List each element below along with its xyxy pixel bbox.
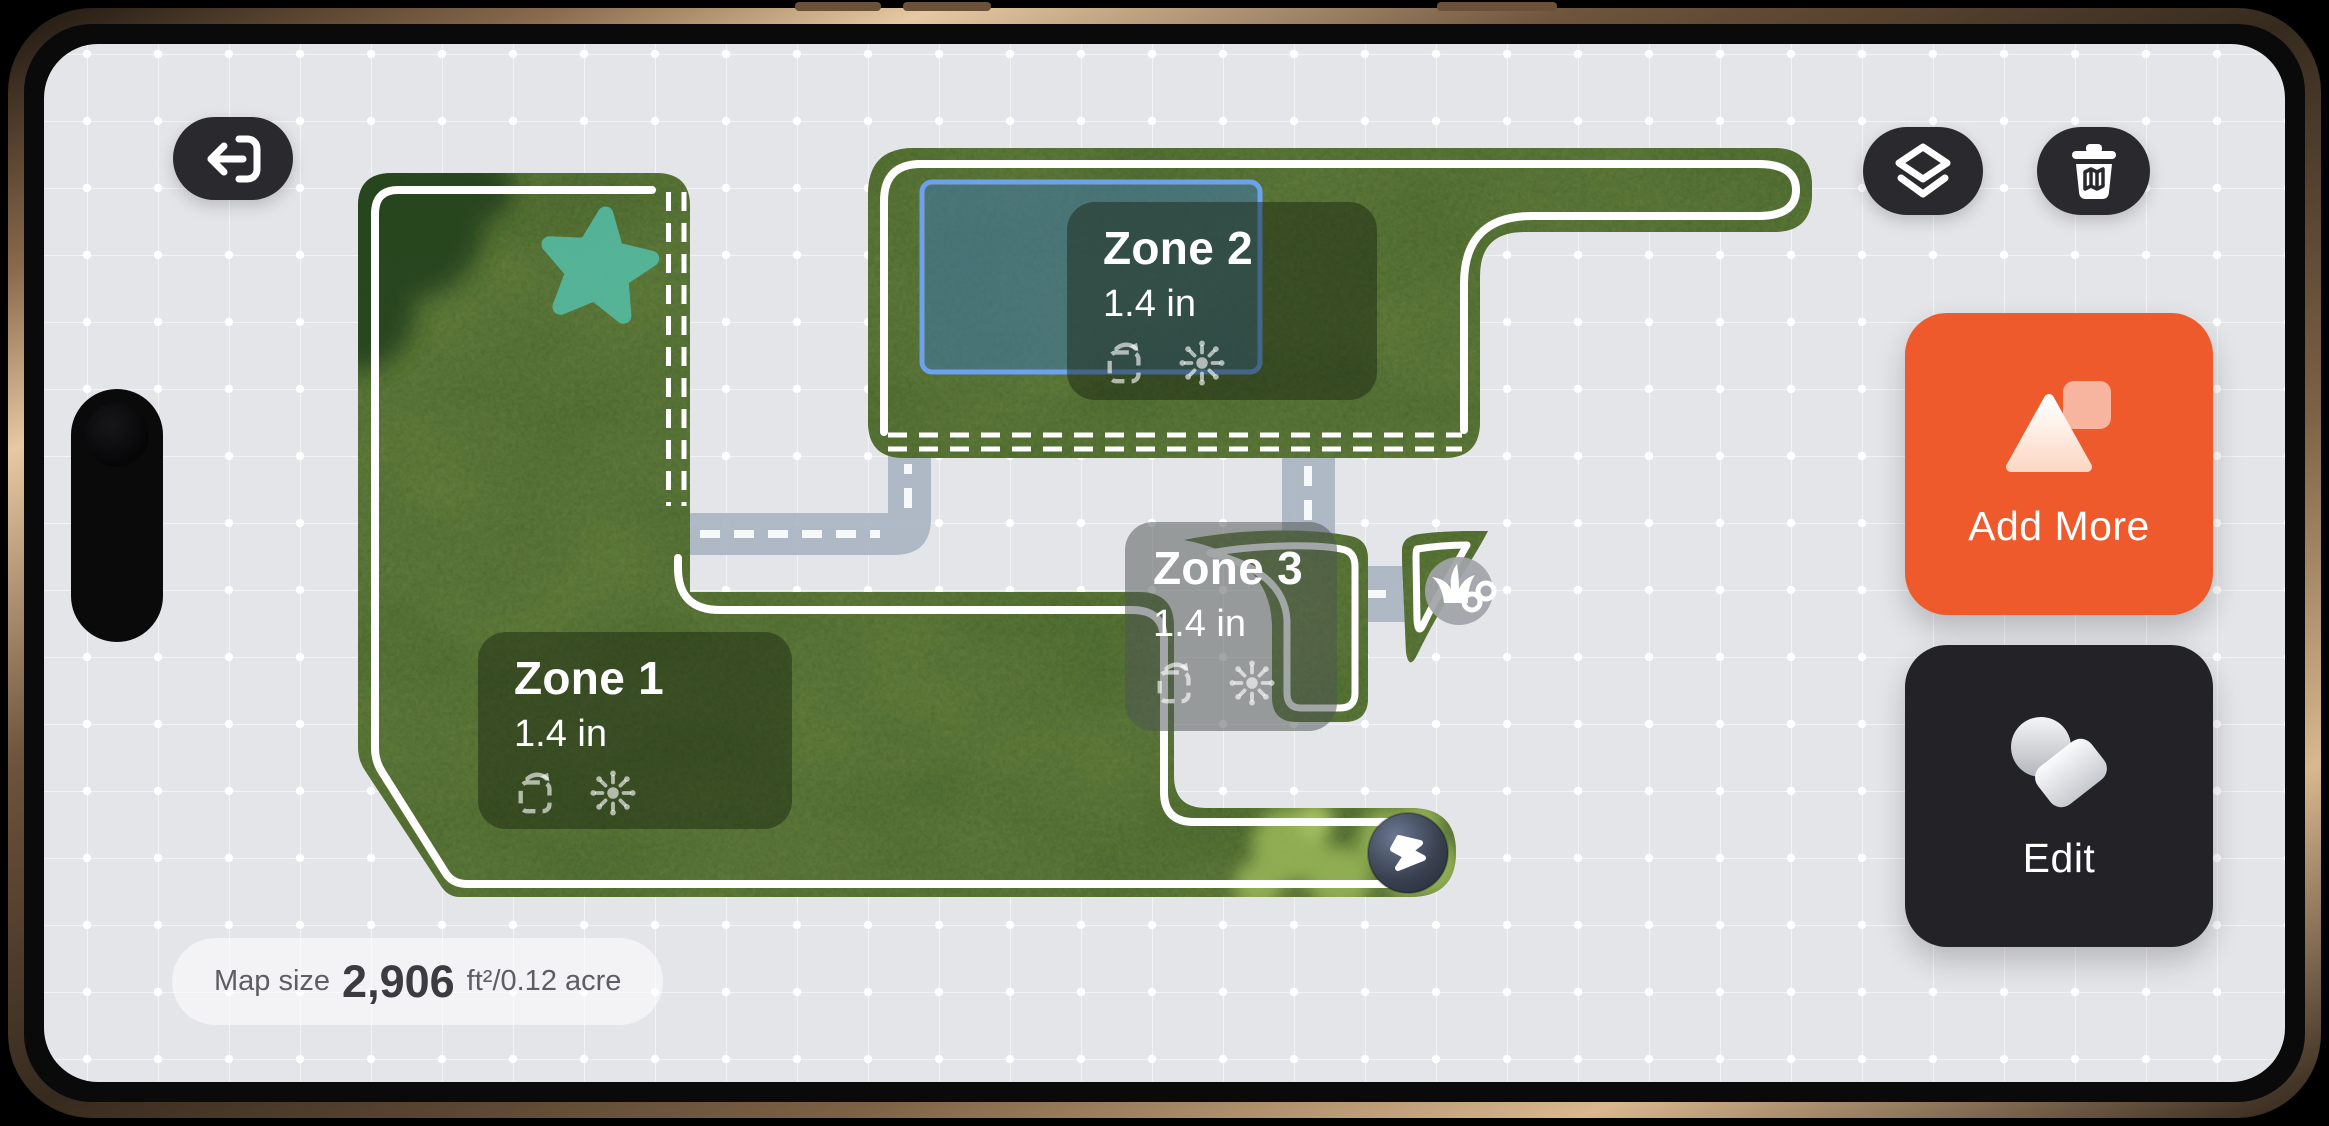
charging-dock[interactable] xyxy=(1368,813,1448,893)
zone2-name: Zone 2 xyxy=(1103,224,1377,274)
layers-button[interactable] xyxy=(1863,127,1983,215)
sprinkler-icon xyxy=(1179,340,1225,386)
zone3-height: 1.4 in xyxy=(1153,603,1337,646)
exit-left-icon xyxy=(201,133,265,185)
zone3-name: Zone 3 xyxy=(1153,544,1337,594)
edit-button[interactable]: Edit xyxy=(1905,645,2213,947)
edit-shapes-icon xyxy=(1999,711,2119,815)
area-icon xyxy=(514,770,560,816)
power-button xyxy=(1437,2,1557,11)
sprinkler-icon xyxy=(590,770,636,816)
zone1-height: 1.4 in xyxy=(514,713,792,756)
front-camera xyxy=(85,403,149,467)
zone1-card[interactable]: Zone 1 1.4 in xyxy=(478,632,792,829)
trash-map-icon xyxy=(2066,141,2122,201)
back-button[interactable] xyxy=(173,117,293,200)
zone3-card[interactable]: Zone 3 1.4 in xyxy=(1125,522,1337,731)
map-size-units: ft²/0.12 acre xyxy=(467,965,622,998)
map-size-pill: Map size 2,906 ft²/0.12 acre xyxy=(172,938,663,1025)
layers-icon xyxy=(1894,142,1952,200)
map-size-value: 2,906 xyxy=(342,956,455,1008)
phone-mockup: Add More Edit Zone 1 1.4 in xyxy=(0,0,2329,1126)
area-icon xyxy=(1103,340,1149,386)
delete-map-button[interactable] xyxy=(2037,127,2150,215)
zone2-height: 1.4 in xyxy=(1103,283,1377,326)
volume-up-button xyxy=(795,2,881,11)
edit-label: Edit xyxy=(2023,835,2096,882)
zone1-icons xyxy=(514,770,792,816)
add-more-button[interactable]: Add More xyxy=(1905,313,2213,615)
add-more-label: Add More xyxy=(1968,503,2150,550)
dynamic-island xyxy=(71,389,163,642)
add-zone-icon xyxy=(1999,379,2119,483)
zone1-name: Zone 1 xyxy=(514,654,792,704)
volume-down-button xyxy=(903,2,991,11)
sprinkler-icon xyxy=(1229,660,1275,706)
map-size-label: Map size xyxy=(214,965,330,998)
zone3-icons xyxy=(1153,660,1337,706)
zone2-card[interactable]: Zone 2 1.4 in xyxy=(1067,202,1377,400)
zone2-icons xyxy=(1103,340,1377,386)
area-icon xyxy=(1153,660,1199,706)
